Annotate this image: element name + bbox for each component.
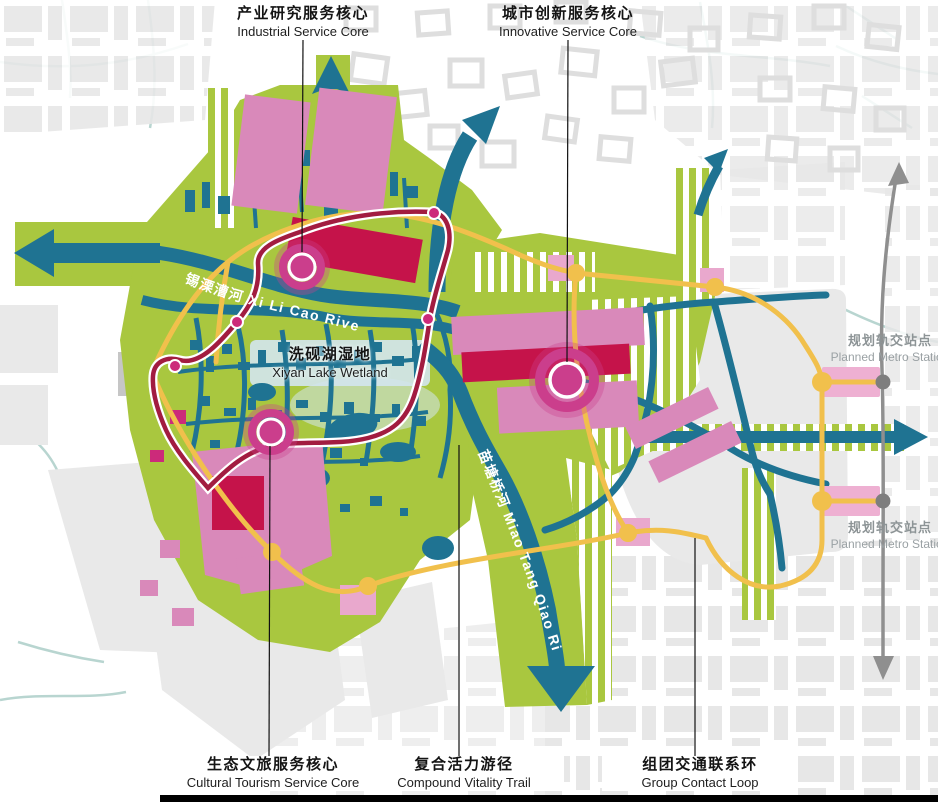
label-vitality-trail-zh: 复合活力游径 [369,756,559,775]
label-metro-upper-zh: 规划轨交站点 [815,333,938,350]
planning-map: 锡溧漕河 Xi Li Cao River 苗塘桥河 Miao Tang Qiao… [0,0,938,802]
label-wetland-zh: 洗砚湖湿地 [250,346,410,365]
label-industrial-core-zh: 产业研究服务核心 [208,5,398,24]
label-metro-lower-en: Planned Metro Station [815,537,938,553]
label-contact-loop-en: Group Contact Loop [607,775,793,791]
label-metro-station-lower: 规划轨交站点 Planned Metro Station [815,520,938,552]
label-cultural-core: 生态文旅服务核心 Cultural Tourism Service Core [163,756,383,791]
label-wetland: 洗砚湖湿地 Xiyan Lake Wetland [250,346,410,381]
label-innovative-core-en: Innovative Service Core [473,24,663,40]
core-marker-cultural [243,404,299,460]
label-metro-lower-zh: 规划轨交站点 [815,520,938,537]
metro-node-upper [876,375,891,390]
label-vitality-trail-en: Compound Vitality Trail [369,775,559,791]
label-contact-loop-zh: 组团交通联系环 [607,756,793,775]
label-innovative-core: 城市创新服务核心 Innovative Service Core [473,5,663,40]
label-wetland-en: Xiyan Lake Wetland [250,365,410,381]
map-canvas: 锡溧漕河 Xi Li Cao River 苗塘桥河 Miao Tang Qiao… [0,0,938,802]
label-vitality-trail: 复合活力游径 Compound Vitality Trail [364,756,564,791]
label-metro-upper-en: Planned Metro Station [815,350,938,366]
flow-arrow-east-shaft [648,431,894,443]
label-metro-station-upper: 规划轨交站点 Planned Metro Station [815,333,938,365]
bottom-rule-bar [160,795,938,802]
label-cultural-core-en: Cultural Tourism Service Core [168,775,378,791]
label-contact-loop: 组团交通联系环 Group Contact Loop [602,756,798,791]
label-industrial-core-en: Industrial Service Core [208,24,398,40]
label-cultural-core-zh: 生态文旅服务核心 [168,756,378,775]
label-industrial-core: 产业研究服务核心 Industrial Service Core [208,5,398,40]
metro-node-lower [876,494,891,509]
label-innovative-core-zh: 城市创新服务核心 [473,5,663,24]
